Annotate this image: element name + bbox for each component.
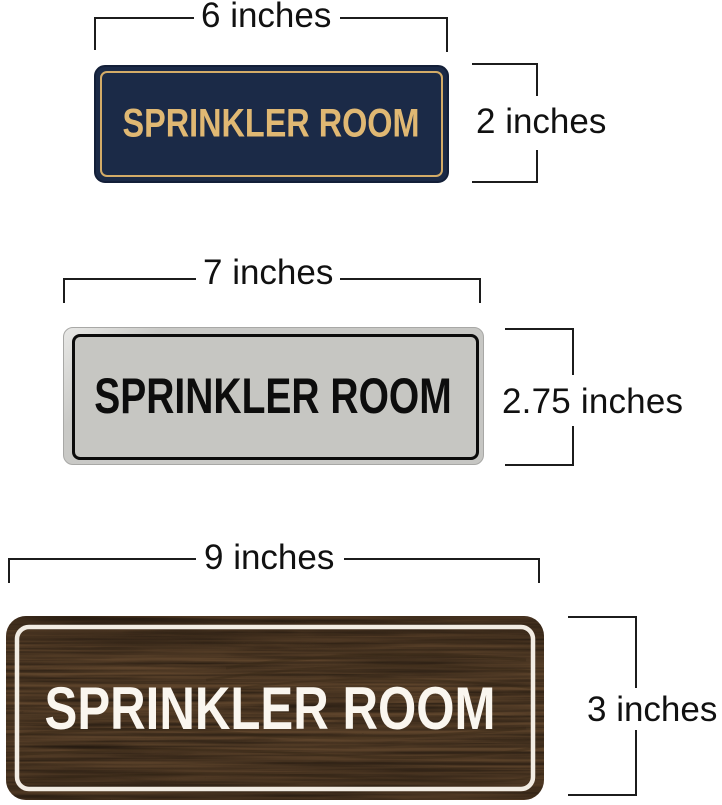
svg-text:SPRINKLER ROOM: SPRINKLER ROOM bbox=[45, 674, 496, 742]
